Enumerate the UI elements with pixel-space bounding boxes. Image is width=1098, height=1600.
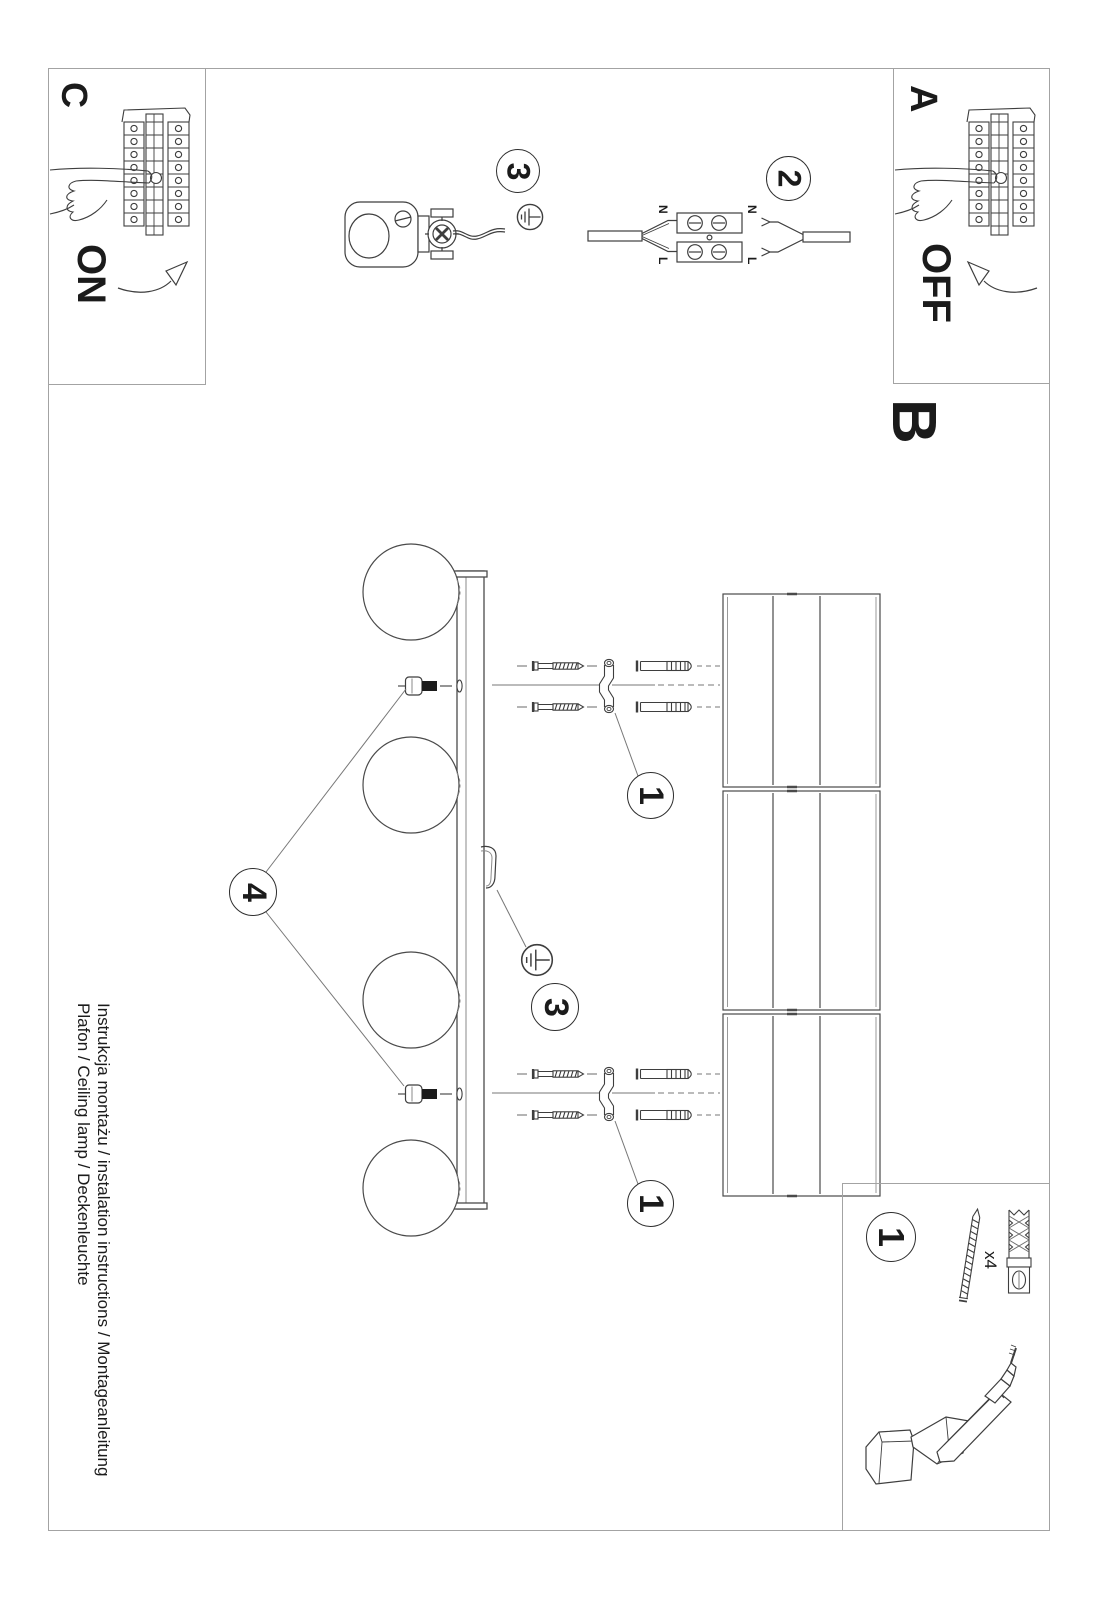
step-1-badge-top: 1 [627, 772, 674, 819]
step-3-number: 3 [535, 998, 574, 1017]
wire-live-label-left: L [655, 257, 669, 264]
step-2-number: 2 [770, 170, 807, 188]
section-a-box [893, 68, 1050, 384]
screw-quantity-label: x4 [980, 1251, 1000, 1269]
footer-title-line: Instrukcja montażu / instalation instruc… [93, 1003, 113, 1476]
step-3-number: 3 [499, 162, 536, 180]
section-c-box [48, 68, 206, 385]
step-1-number: 1 [870, 1227, 912, 1247]
footer-product-line: Plafon / Ceiling lamp / Deckenleuchte [73, 1003, 93, 1286]
wire-neutral-label-right: N [744, 205, 758, 214]
section-a-label: A [900, 85, 944, 112]
step-1-number: 1 [631, 786, 670, 805]
step-1-badge-bottom: 1 [627, 1180, 674, 1227]
step-4-number: 4 [233, 883, 272, 902]
wire-neutral-label-left: N [655, 205, 669, 214]
instruction-sheet: C ON A OFF B N N L L x4 Instrukcja monta… [0, 0, 1098, 1600]
step-3-badge-top: 3 [496, 149, 540, 193]
step-4-badge: 4 [229, 868, 277, 916]
wire-live-label-right: L [744, 257, 758, 264]
section-c-label: C [54, 82, 95, 108]
earth-ground-icon-main [520, 943, 554, 977]
step-2-badge: 2 [766, 156, 811, 201]
earth-ground-icon-top [516, 203, 544, 231]
section-b-label: B [878, 399, 949, 444]
step-1-badge-parts: 1 [866, 1212, 916, 1262]
step-3-badge-main: 3 [531, 983, 579, 1031]
step-1-number: 1 [631, 1194, 670, 1213]
switch-off-label: OFF [913, 243, 959, 323]
switch-on-label: ON [68, 244, 114, 304]
